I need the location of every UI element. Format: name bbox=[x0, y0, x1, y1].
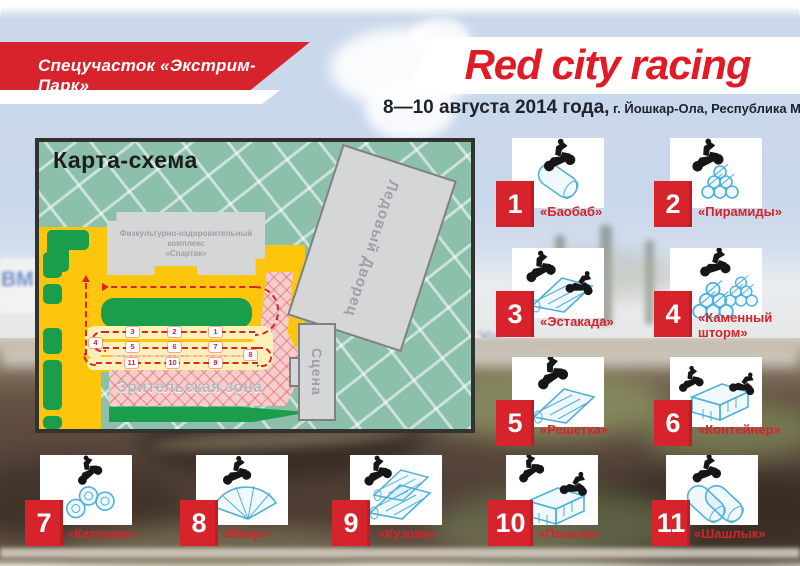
grass-block bbox=[43, 360, 62, 410]
sport-complex-label-1: Физкультурно-оздоровительный bbox=[120, 229, 252, 239]
track-point-1: 1 bbox=[209, 327, 222, 337]
obstacle-label-8: «Веер» bbox=[222, 527, 326, 542]
track-point-6: 6 bbox=[168, 342, 181, 352]
obstacle-label-6: «Контейнер» bbox=[698, 423, 800, 438]
grass-block bbox=[43, 252, 62, 278]
grass-block bbox=[43, 328, 62, 354]
obstacle-number-6: 6 bbox=[654, 400, 692, 446]
bottom-light-strip bbox=[0, 548, 800, 558]
obstacle-number-10: 10 bbox=[488, 500, 533, 546]
grass-block bbox=[43, 284, 62, 304]
obstacle-label-1: «Баобаб» bbox=[540, 205, 644, 220]
special-stage-label: Спецучасток «Экстрим-Парк» bbox=[38, 56, 288, 96]
track-start-arrow bbox=[82, 275, 90, 282]
obstacle-label-4: «Каменный шторм» bbox=[698, 311, 790, 341]
sport-complex-label-2: комплекс bbox=[120, 239, 252, 249]
obstacle-number-2: 2 bbox=[654, 181, 692, 227]
stage-building: Сцена bbox=[298, 323, 336, 421]
obstacle-number-9: 9 bbox=[332, 500, 370, 546]
event-poster: ВМ Yo Спецучасток «Экстрим-Парк» Red cit… bbox=[0, 0, 800, 566]
obstacle-number-3: 3 bbox=[496, 291, 534, 337]
track-point-9: 9 bbox=[209, 358, 222, 368]
sport-complex-label-3: «Спартак» bbox=[120, 249, 252, 259]
spectator-zone-label: Зрительская зона bbox=[117, 379, 262, 397]
track-point-2: 2 bbox=[168, 327, 181, 337]
track-direction-arrow bbox=[102, 283, 109, 291]
grass-block bbox=[43, 416, 62, 429]
track-line bbox=[85, 283, 87, 355]
event-date-location: 8—10 августа 2014 года, г. Йошкар-Ола, Р… bbox=[383, 97, 795, 119]
ice-palace-label: Ледовый Дворец bbox=[342, 178, 402, 319]
track-line bbox=[111, 286, 255, 288]
track-point-11: 11 bbox=[125, 358, 138, 368]
track-point-4: 4 bbox=[89, 338, 102, 348]
track-point-8: 8 bbox=[244, 350, 257, 360]
obstacle-number-11: 11 bbox=[652, 500, 690, 546]
obstacle-label-5: «Решетка» bbox=[540, 423, 644, 438]
obstacle-number-8: 8 bbox=[180, 500, 218, 546]
stage-label: Сцена bbox=[309, 348, 325, 396]
track-point-3: 3 bbox=[126, 327, 139, 337]
photo-banner-text: ВМ bbox=[1, 268, 34, 292]
obstacle-label-10: «Пеньки» bbox=[538, 527, 642, 542]
ice-palace-building: Ледовый Дворец bbox=[287, 144, 457, 352]
obstacle-number-1: 1 bbox=[496, 181, 534, 227]
grass-strip bbox=[109, 404, 309, 422]
obstacle-number-5: 5 bbox=[496, 400, 534, 446]
track-point-10: 10 bbox=[166, 358, 179, 368]
track-point-5: 5 bbox=[126, 342, 139, 352]
track-point-7: 7 bbox=[209, 342, 222, 352]
sport-complex-building: Физкультурно-оздоровительный комплекс «С… bbox=[107, 212, 265, 275]
obstacle-label-3: «Эстакада» bbox=[540, 315, 644, 330]
obstacle-label-9: «Кузова» bbox=[378, 527, 482, 542]
event-title: Red city racing bbox=[420, 40, 795, 92]
map-panel: Зрительская зона Ледовый Дворец Физкульт… bbox=[35, 138, 475, 433]
obstacle-label-11: «Шашлык» bbox=[694, 527, 798, 542]
infield-grass bbox=[101, 298, 252, 328]
obstacle-label-2: «Пирамиды» bbox=[698, 205, 800, 220]
map-title: Карта-схема bbox=[53, 147, 198, 174]
event-location: г. Йошкар-Ола, Республика Марий Эл bbox=[609, 101, 800, 116]
obstacle-number-4: 4 bbox=[654, 291, 692, 337]
obstacle-label-7: «Катушки» bbox=[67, 527, 171, 542]
event-date: 8—10 августа 2014 года, bbox=[383, 97, 609, 118]
obstacle-number-7: 7 bbox=[25, 500, 63, 546]
